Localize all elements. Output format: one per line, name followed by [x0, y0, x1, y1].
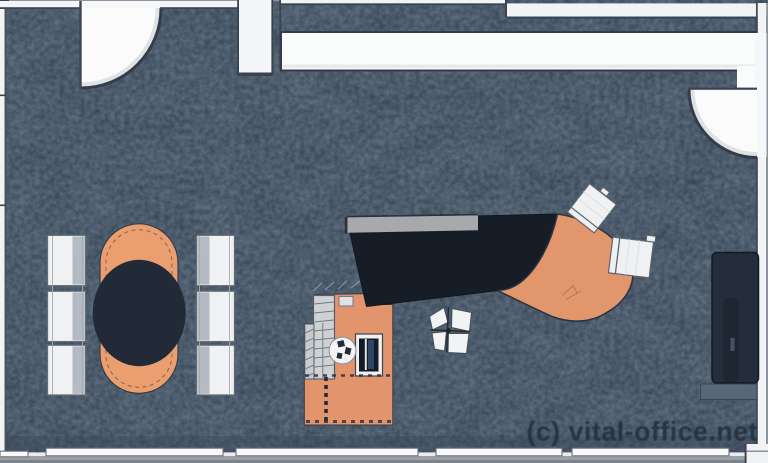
svg-text:(c) vital-office.net: (c) vital-office.net [527, 417, 758, 447]
